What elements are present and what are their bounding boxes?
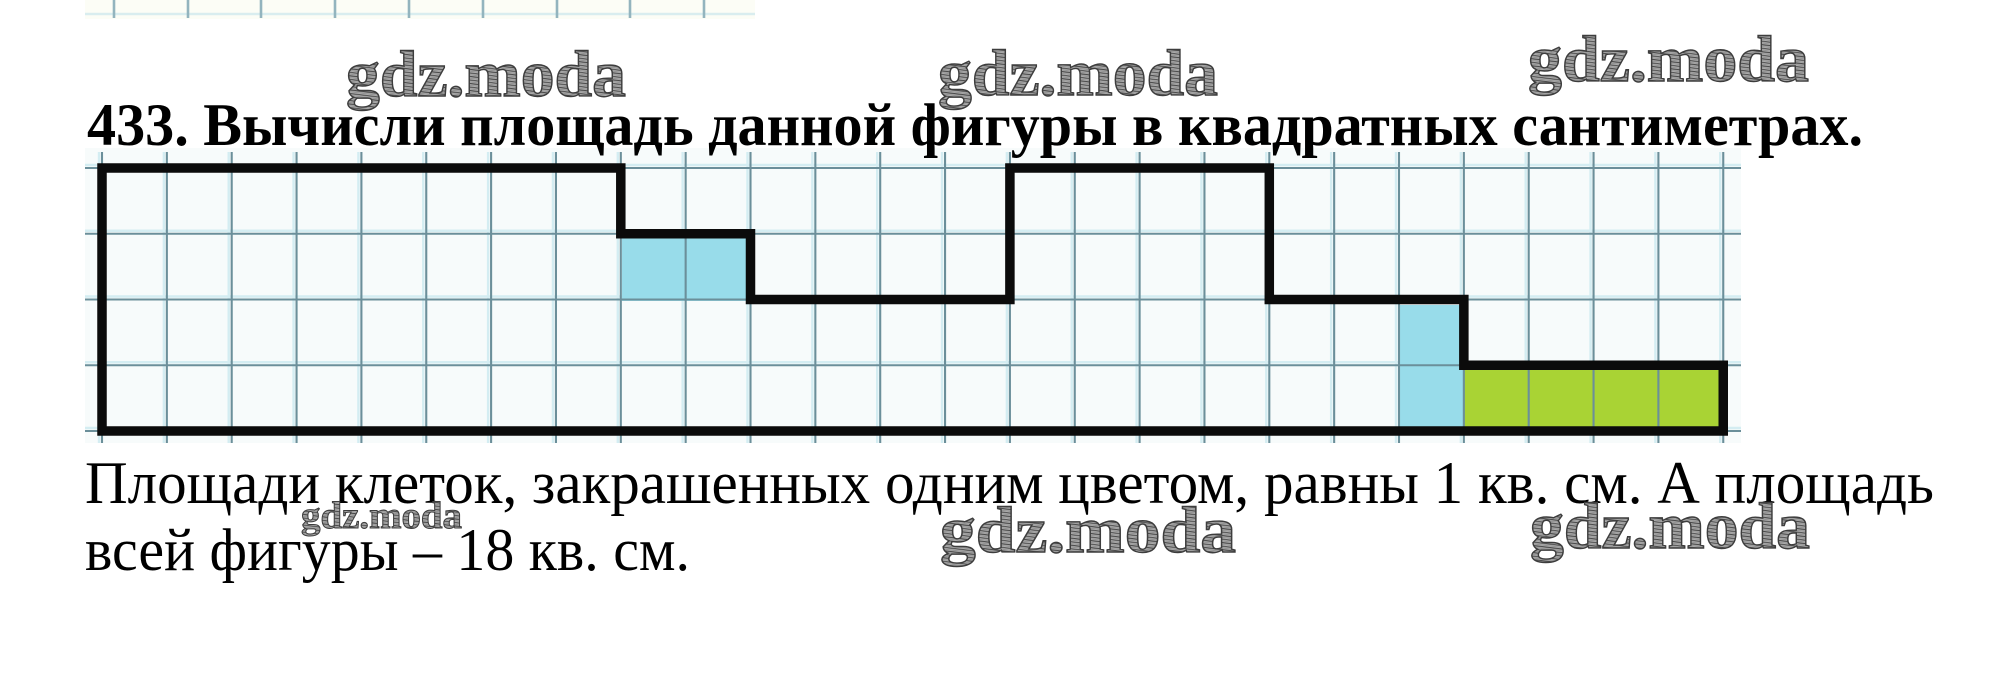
svg-text:gdz.moda: gdz.moda xyxy=(938,37,1218,110)
svg-text:gdz.moda: gdz.moda xyxy=(940,494,1236,567)
svg-text:gdz.moda: gdz.moda xyxy=(1530,490,1810,563)
svg-text:gdz.moda: gdz.moda xyxy=(1528,23,1809,96)
svg-text:gdz.moda: gdz.moda xyxy=(301,495,462,537)
svg-text:gdz.moda: gdz.moda xyxy=(346,38,626,111)
